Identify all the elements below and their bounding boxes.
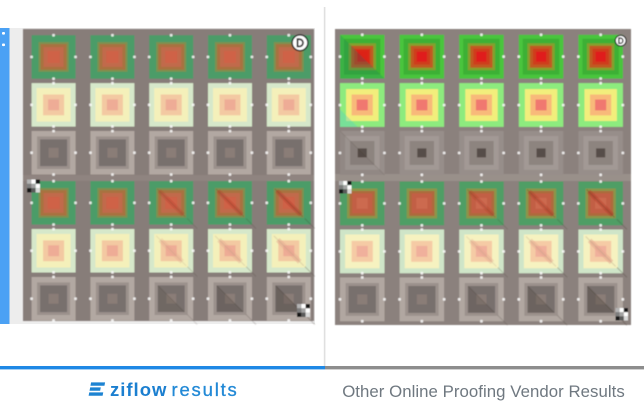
- svg-text:results: results: [172, 379, 239, 400]
- svg-text:ziflow: ziflow: [110, 379, 167, 400]
- svg-text:Other Online Proofing Vendor R: Other Online Proofing Vendor Results: [342, 382, 625, 401]
